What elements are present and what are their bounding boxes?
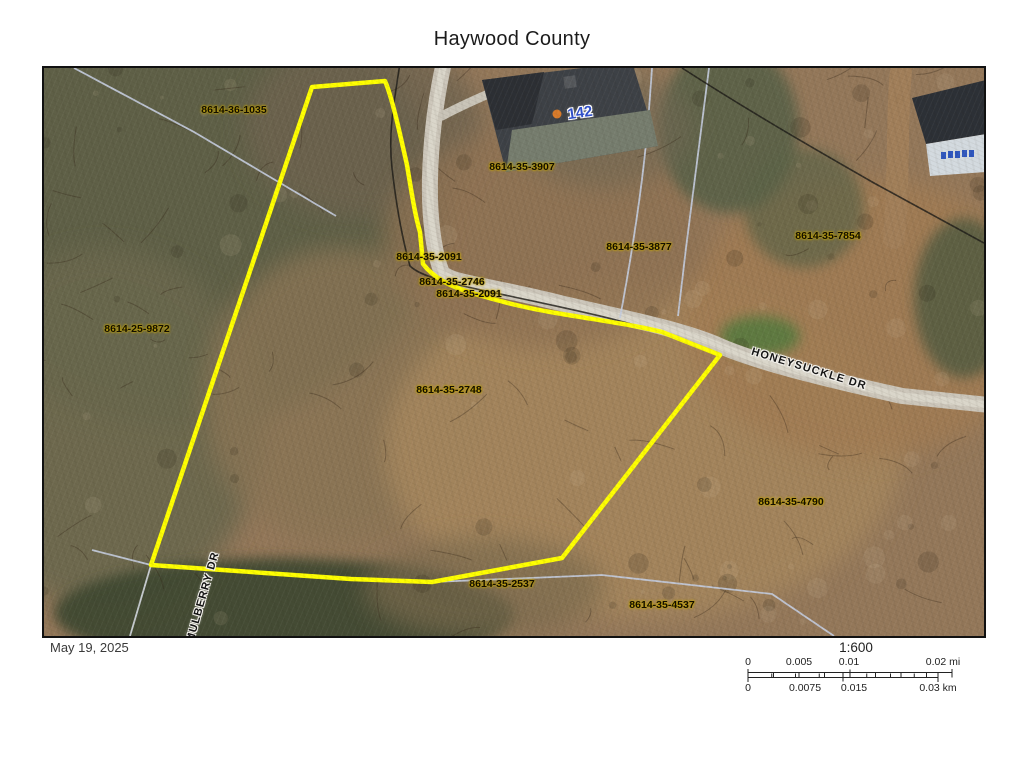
scalebar-ticks — [742, 669, 977, 683]
dirt-path — [894, 68, 902, 238]
export-date: May 19, 2025 — [50, 640, 129, 655]
scalebar-miles-labels: 00.0050.010.02 mi — [742, 656, 977, 668]
scale-tick-label: 0.03 km — [919, 682, 956, 694]
aerial-map-canvas — [44, 68, 984, 636]
scale-tick-label: 0.015 — [841, 682, 867, 694]
aerial-map: 8614-36-10358614-35-39078614-35-20918614… — [42, 66, 986, 638]
scale-tick-label: 0 — [745, 682, 751, 694]
scale-tick-label: 0.01 — [839, 656, 859, 668]
scalebar-km-labels: 00.00750.0150.03 km — [742, 682, 977, 694]
scale-ratio: 1:600 — [839, 640, 873, 655]
scale-tick-label: 0.02 mi — [926, 656, 960, 668]
address-point — [553, 110, 562, 119]
scale-tick-label: 0.005 — [786, 656, 812, 668]
scalebar: 1:600 00.0050.010.02 mi — [742, 640, 977, 702]
map-export-page: Haywood County — [0, 0, 1024, 768]
scale-tick-label: 0 — [745, 656, 751, 668]
scale-tick-label: 0.0075 — [789, 682, 821, 694]
page-title: Haywood County — [0, 28, 1024, 51]
